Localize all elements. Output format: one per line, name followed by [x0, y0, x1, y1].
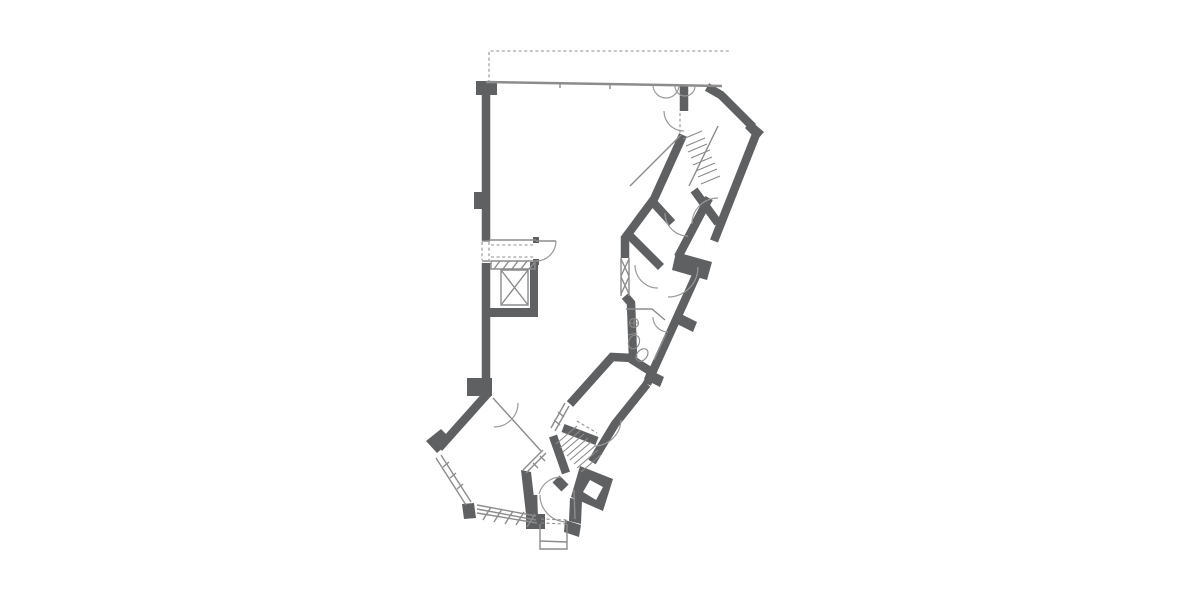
- partition-1: [650, 199, 672, 223]
- inner-wall-right: [678, 198, 709, 257]
- window-mid-left-cross: [621, 259, 629, 294]
- door-arc-bathroom: [653, 317, 668, 332]
- lobby-window-diagonal: [523, 450, 546, 473]
- outer-wall-lower-right: [592, 384, 647, 462]
- vestibule-right-line: [574, 490, 575, 519]
- window-block-small: [462, 503, 476, 519]
- top-facade-wall: [486, 82, 722, 86]
- elevator-car-cross: [501, 270, 528, 305]
- outer-wall-upper-right: [714, 132, 757, 241]
- projection-dashed-line: [489, 51, 729, 83]
- stair-treads-upper: [683, 131, 720, 184]
- vestibule-left-wall: [533, 495, 534, 526]
- window-lower-left: [436, 455, 471, 505]
- partition-2: [630, 236, 661, 267]
- pilaster-upper: [474, 192, 483, 209]
- elevator-door-hatch: [494, 261, 535, 269]
- top-right-corner-wall: [707, 87, 753, 127]
- door-arc-room-3: [635, 265, 658, 288]
- floor-plan-page: [0, 0, 1200, 600]
- bathroom-bottom-elbow: [570, 357, 633, 404]
- dashed-wall-opening: [482, 242, 489, 260]
- floor-plan-svg: [0, 0, 1200, 600]
- fixture-sink: [630, 319, 639, 328]
- dashed-elevator-lobby: [491, 245, 535, 257]
- door-arc-stair-entry: [664, 111, 684, 131]
- door-arc-lower-left-room: [494, 403, 518, 427]
- wall-below-block: [569, 498, 582, 524]
- door-arc-elevator-lobby: [536, 241, 556, 261]
- shaft-right-wall: [530, 262, 538, 316]
- shaft-bottom-wall: [487, 308, 538, 317]
- vestibule-inner-line: [540, 541, 567, 542]
- diagonal-wall-lower-left: [439, 392, 489, 448]
- lobby-stair-stub: [556, 479, 565, 488]
- interior-thin-wall: [493, 398, 541, 451]
